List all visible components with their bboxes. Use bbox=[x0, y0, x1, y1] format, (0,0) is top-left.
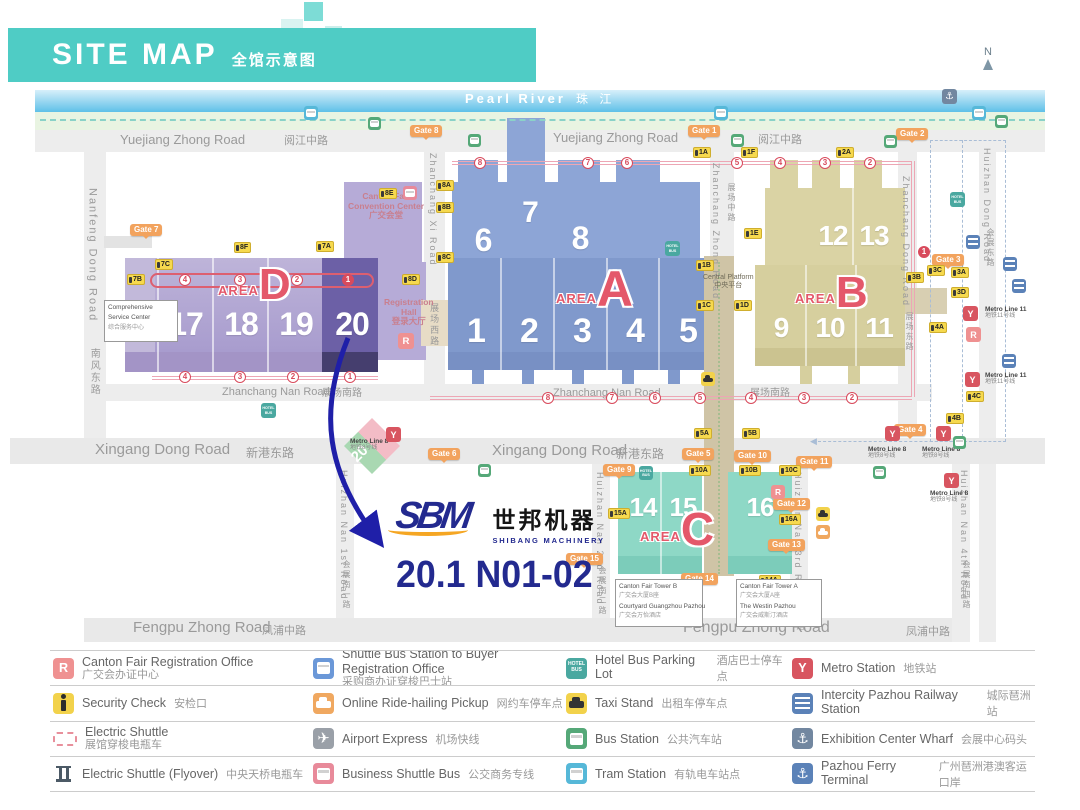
hotel-icon: HOTELBUS bbox=[639, 466, 653, 480]
anchor1-icon: ⚓ bbox=[792, 728, 813, 749]
entrance-tag: 7C bbox=[155, 259, 173, 270]
canton-fair-tower-a-box: Canton Fair Tower A广交会大厦A座The Westin Paz… bbox=[736, 579, 822, 627]
legend-label-zh: 安检口 bbox=[174, 695, 207, 711]
shuttle-stop: 3 bbox=[234, 274, 246, 286]
hall-number: 3 bbox=[573, 312, 591, 351]
shuttle-stop: 3 bbox=[798, 392, 810, 404]
legend-item: Bus Station公共汽车站 bbox=[563, 722, 789, 757]
rail-icon bbox=[1003, 257, 1017, 271]
walk-stub bbox=[848, 366, 860, 384]
site-map-page: SITE MAP 全馆示意图 N Pearl River珠 江Yuejiang … bbox=[0, 0, 1080, 810]
legend-label-en: Tram Station bbox=[595, 767, 666, 781]
entrance-tag: 1E bbox=[744, 228, 762, 239]
legend-label-en: Hotel Bus Parking Lot bbox=[595, 653, 709, 681]
legend-label-zh: 广州琶洲港澳客运口岸 bbox=[939, 758, 1035, 790]
busgreen-icon bbox=[478, 464, 491, 477]
gate-label: Gate 1 bbox=[688, 125, 720, 137]
hall-number: 8 bbox=[572, 220, 589, 257]
legend-label-en: Online Ride-hailing Pickup bbox=[342, 696, 489, 710]
gate-label: Gate 5 bbox=[682, 448, 714, 460]
shuttle-stop: 2 bbox=[287, 371, 299, 383]
map-label: 阅江中路 bbox=[284, 135, 328, 147]
entrance-tag: 8A bbox=[436, 180, 454, 191]
area-title-a: AREAA bbox=[556, 268, 633, 311]
comprehensive-service-center-box: ComprehensiveService Center综合服务中心 bbox=[104, 300, 178, 342]
map-label: 会展南四路 bbox=[961, 560, 970, 610]
map-label: Xingang Dong Road bbox=[95, 442, 230, 459]
plane-icon: ✈ bbox=[313, 728, 334, 749]
map-label: 新港东路 bbox=[246, 447, 294, 460]
shuttle-stop: 2 bbox=[846, 392, 858, 404]
entrance-tag: 4C bbox=[966, 391, 984, 402]
walk-stub bbox=[522, 370, 534, 384]
banner-square bbox=[304, 2, 323, 21]
shuttle-stop: 8 bbox=[542, 392, 554, 404]
legend-item: ⚓Pazhou Ferry Terminal广州琶洲港澳客运口岸 bbox=[789, 757, 1035, 792]
legend-label-zh: 展馆穿梭电瓶车 bbox=[85, 739, 168, 752]
platform-dotted-line bbox=[718, 262, 720, 574]
legend-label-zh: 机场快线 bbox=[435, 731, 479, 747]
hall-number: 5 bbox=[679, 312, 697, 351]
metro-icon: Y bbox=[792, 658, 813, 679]
map-label: 珠 江 bbox=[576, 93, 615, 106]
hall-number: 1 bbox=[467, 312, 485, 351]
legend-item: Tram Station有轨电车站点 bbox=[563, 757, 789, 792]
shuttle-stop: 6 bbox=[649, 392, 661, 404]
legend-label-zh: 公交商务专线 bbox=[468, 766, 534, 782]
gate-label: Gate 2 bbox=[896, 128, 928, 140]
gate-label: Gate 13 bbox=[768, 539, 805, 551]
legend-label-zh: 地铁站 bbox=[903, 660, 936, 676]
busgreen-icon bbox=[884, 135, 897, 148]
legend-label-en: Electric Shuttle (Flyover) bbox=[82, 767, 218, 781]
shuttle-stop: 1 bbox=[342, 274, 354, 286]
gate-label: Gate 11 bbox=[796, 456, 832, 468]
gate-label: Gate 12 bbox=[773, 498, 810, 510]
busgreen-icon bbox=[566, 728, 587, 749]
shuttle-stop: 4 bbox=[774, 157, 786, 169]
area-b-corridor bbox=[755, 348, 905, 366]
metro-line-label: Metro Line 11地铁11号线 bbox=[985, 306, 1027, 320]
busblue-icon bbox=[313, 658, 334, 679]
walk-stub bbox=[572, 370, 584, 384]
shuttle-stop: 3 bbox=[819, 157, 831, 169]
legend-item: Online Ride-hailing Pickup网约车停车点 bbox=[310, 686, 563, 721]
rail-icon bbox=[1012, 279, 1026, 293]
shuttle-stop: 2 bbox=[291, 274, 303, 286]
legend-label-en: Metro Station bbox=[821, 661, 895, 675]
map-label: Registration Hall 登录大厅 bbox=[384, 298, 434, 327]
legend-label-zh: 城际琶洲站 bbox=[987, 687, 1035, 719]
legend-label-en: Canton Fair Registration Office bbox=[82, 655, 253, 669]
map-label: 南风东路 bbox=[88, 348, 99, 396]
gate-label: Gate 6 bbox=[428, 448, 460, 460]
legend-label-en: Security Check bbox=[82, 696, 166, 710]
hall-number: 16 bbox=[747, 492, 774, 523]
tram-icon bbox=[304, 106, 318, 120]
entrance-tag: 1D bbox=[734, 300, 752, 311]
shuttle-stop: 5 bbox=[694, 392, 706, 404]
metro-icon: Y bbox=[963, 306, 978, 321]
map-label: Pearl River bbox=[465, 92, 566, 107]
north-label: N bbox=[978, 46, 998, 58]
map-label: 展场南路 bbox=[322, 388, 362, 399]
map-label: Xingang Dong Road bbox=[492, 443, 627, 460]
hall-number: 7 bbox=[522, 196, 538, 230]
hall-number: 18 bbox=[224, 306, 258, 343]
map-label: 展场东路 bbox=[904, 312, 913, 352]
hotel-icon: HOTELBUS bbox=[261, 403, 276, 418]
page-title: SITE MAP bbox=[52, 38, 218, 72]
ridehail-icon bbox=[313, 693, 334, 714]
north-arrow-icon bbox=[983, 59, 993, 70]
canton-fair-tower-b-box: Canton Fair Tower B广交会大厦B座Courtyard Guan… bbox=[615, 579, 703, 627]
entrance-tag: 1F bbox=[741, 147, 758, 158]
legend-label-zh: 有轨电车站点 bbox=[674, 766, 740, 782]
hall-number: 20 bbox=[335, 306, 369, 343]
gate-label: Gate 8 bbox=[410, 125, 442, 137]
flyover-icon bbox=[53, 763, 74, 784]
legend-label-zh: 网约车停车点 bbox=[497, 695, 563, 711]
map-label: 会展南一路 bbox=[341, 560, 350, 610]
busgreen-icon bbox=[731, 134, 744, 147]
hall-7-tower bbox=[507, 118, 545, 184]
legend-item: Taxi Stand出租车停车点 bbox=[563, 686, 789, 721]
entrance-tag: 15A bbox=[608, 508, 630, 519]
busgreen-icon bbox=[953, 436, 966, 449]
legend-item: YMetro Station地铁站 bbox=[789, 651, 1035, 686]
shuttle-stop: 7 bbox=[606, 392, 618, 404]
buspink-icon bbox=[313, 763, 334, 784]
page-subtitle: 全馆示意图 bbox=[232, 49, 317, 70]
entrance-tag: 3D bbox=[951, 287, 969, 298]
entrance-tag: 5B bbox=[742, 428, 760, 439]
entrance-tag: 7B bbox=[127, 274, 145, 285]
hall-number: 2 bbox=[520, 312, 538, 351]
shuttle-stop: 1 bbox=[344, 371, 356, 383]
hall-number: 4 bbox=[626, 312, 644, 351]
shuttle-stop: 4 bbox=[179, 274, 191, 286]
busgreen-icon bbox=[873, 466, 886, 479]
entrance-tag: 10B bbox=[739, 465, 761, 476]
area-title-c: AREAC bbox=[640, 510, 714, 549]
metro-icon: Y bbox=[944, 473, 959, 488]
entrance-tag: 10C bbox=[779, 465, 801, 476]
r-icon: R bbox=[966, 327, 981, 342]
legend-label-zh: 公共汽车站 bbox=[667, 731, 722, 747]
legend-label-en: Pazhou Ferry Terminal bbox=[821, 759, 931, 787]
buspink-icon bbox=[403, 186, 417, 200]
hall-number: 9 bbox=[774, 312, 789, 344]
hall-number: 12 bbox=[818, 220, 847, 252]
gate-label: Gate 9 bbox=[603, 464, 635, 476]
entrance-tag: 10A bbox=[689, 465, 711, 476]
metro-icon: Y bbox=[936, 426, 951, 441]
r-icon: R bbox=[398, 333, 414, 349]
shuttle-stop: 4 bbox=[745, 392, 757, 404]
metro-line-label: Metro Line 8地铁8号线 bbox=[350, 438, 388, 452]
legend-label-en: Airport Express bbox=[342, 732, 427, 746]
sbm-logo-swoosh bbox=[388, 524, 468, 536]
shuttle-route-line bbox=[452, 161, 912, 165]
tram-icon bbox=[972, 106, 986, 120]
map-label: 凤浦中路 bbox=[906, 626, 950, 638]
area-c-right-corridor bbox=[728, 556, 792, 574]
taxi-icon bbox=[566, 693, 587, 714]
legend-item: RCanton Fair Registration Office广交会办证中心 bbox=[50, 651, 310, 686]
hotel-icon: HOTELBUS bbox=[566, 658, 587, 679]
entrance-tag: 8B bbox=[436, 202, 454, 213]
loop-icon bbox=[53, 732, 77, 746]
hotel-icon: HOTELBUS bbox=[665, 241, 680, 256]
legend-item: ⚓Exhibition Center Wharf会展中心码头 bbox=[789, 722, 1035, 757]
rail-icon bbox=[792, 693, 813, 714]
busgreen-icon bbox=[368, 117, 381, 130]
metro-line-label: Metro Line 11地铁11号线 bbox=[985, 372, 1027, 386]
legend-label-en: Electric Shuttle bbox=[85, 725, 168, 739]
entrance-tag: 7A bbox=[316, 241, 334, 252]
entrance-tag: 8D bbox=[402, 274, 420, 285]
legend-label-zh: 中央天桥电瓶车 bbox=[226, 766, 303, 782]
hall-number: 19 bbox=[279, 306, 313, 343]
legend-label-en: Exhibition Center Wharf bbox=[821, 732, 953, 746]
legend-label-zh: 广交会办证中心 bbox=[82, 669, 253, 682]
shuttle-stop: 5 bbox=[731, 157, 743, 169]
legend-item: Intercity Pazhou Railway Station城际琶洲站 bbox=[789, 686, 1035, 721]
legend-label-zh: 酒店巴士停车点 bbox=[717, 652, 789, 684]
legend-label-en: Business Shuttle Bus bbox=[342, 767, 460, 781]
hall-number: 13 bbox=[859, 220, 888, 252]
map-label: 阅江中路 bbox=[758, 134, 802, 146]
legend-label-zh: 出租车停车点 bbox=[661, 695, 727, 711]
tram-dashed-line bbox=[818, 441, 963, 442]
metro-icon: Y bbox=[386, 427, 401, 442]
booth-number: 20.1 N01-02 bbox=[396, 554, 593, 597]
legend-label-zh: 采购商办证穿梭巴士站 bbox=[342, 676, 563, 686]
metro-icon: Y bbox=[965, 372, 980, 387]
metro-line-label: Metro Line 8地铁8号线 bbox=[868, 446, 906, 460]
riverside-tram-line bbox=[40, 119, 1045, 121]
entrance-tag: 3A bbox=[951, 267, 969, 278]
legend-item: Business Shuttle Bus公交商务专线 bbox=[310, 757, 563, 792]
metro-icon: Y bbox=[885, 426, 900, 441]
map-label: Yuejiang Zhong Road bbox=[553, 131, 678, 146]
rail-icon bbox=[1002, 354, 1016, 368]
legend-item: Electric Shuttle展馆穿梭电瓶车 bbox=[50, 722, 310, 757]
legend-item: Shuttle Bus Station to Buyer Registratio… bbox=[310, 651, 563, 686]
entrance-tag: 2A bbox=[836, 147, 854, 158]
area-a-corridor bbox=[448, 352, 710, 370]
entrance-tag: 8E bbox=[379, 188, 397, 199]
shuttle-stop: 4 bbox=[179, 371, 191, 383]
walk-stub bbox=[800, 366, 812, 384]
entrance-tag: 8C bbox=[436, 252, 454, 263]
walk-stub bbox=[668, 370, 680, 384]
entrance-tag: 1A bbox=[693, 147, 711, 158]
map-label: 新港东路 bbox=[616, 448, 664, 461]
map-label: Fengpu Zhong Road bbox=[133, 620, 271, 637]
gate-label: Gate 10 bbox=[734, 450, 771, 462]
shuttle-stop: 7 bbox=[582, 157, 594, 169]
busgreen-icon bbox=[468, 134, 481, 147]
legend-label-en: Taxi Stand bbox=[595, 696, 653, 710]
entrance-tag: 8F bbox=[234, 242, 251, 253]
shuttle-stop: 3 bbox=[234, 371, 246, 383]
entrance-tag: 4A bbox=[929, 322, 947, 333]
shuttle-route-line bbox=[430, 396, 912, 400]
ridehail-icon bbox=[816, 525, 830, 539]
taxi-icon bbox=[816, 507, 830, 521]
legend-item: Electric Shuttle (Flyover)中央天桥电瓶车 bbox=[50, 757, 310, 792]
person-icon bbox=[53, 693, 74, 714]
entrance-tag: 4B bbox=[946, 413, 964, 424]
hotel-icon: HOTELBUS bbox=[950, 192, 965, 207]
map-label: ◀ bbox=[810, 436, 817, 446]
shuttle-stop: 2 bbox=[864, 157, 876, 169]
entrance-tag: 3C bbox=[927, 265, 945, 276]
legend-label-en: Shuttle Bus Station to Buyer Registratio… bbox=[342, 651, 563, 676]
busgreen-icon bbox=[995, 115, 1008, 128]
map-label: 会展东路 bbox=[985, 228, 994, 268]
shuttle-stop: 6 bbox=[621, 157, 633, 169]
legend-label-en: Intercity Pazhou Railway Station bbox=[821, 688, 979, 716]
map-label: Yuejiang Zhong Road bbox=[120, 133, 245, 148]
map-label: Zhanchang Dong Road bbox=[901, 176, 911, 307]
area-title-d: AREAD bbox=[218, 266, 291, 303]
rail-icon bbox=[966, 235, 980, 249]
map-label: Central Platform 中央平台 bbox=[703, 274, 754, 290]
legend-label-en: Bus Station bbox=[595, 732, 659, 746]
north-compass: N bbox=[978, 46, 998, 70]
map-legend: RCanton Fair Registration Office广交会办证中心S… bbox=[50, 650, 1035, 792]
hall-divider bbox=[553, 258, 555, 370]
tram-icon bbox=[566, 763, 587, 784]
gate-label: Gate 7 bbox=[130, 224, 162, 236]
anchor1-icon: ⚓ bbox=[942, 89, 957, 104]
walk-stub bbox=[472, 370, 484, 384]
hall-divider bbox=[658, 258, 660, 370]
legend-item: Security Check安检口 bbox=[50, 686, 310, 721]
hall-20-corridor bbox=[322, 352, 378, 372]
hall-divider bbox=[500, 258, 502, 370]
entrance-tag: 16A bbox=[779, 514, 801, 525]
tram-icon bbox=[714, 106, 728, 120]
hall-number: 11 bbox=[865, 312, 893, 344]
entrance-tag: 1B bbox=[696, 260, 714, 271]
walk-stub bbox=[622, 370, 634, 384]
taxi-icon bbox=[701, 372, 715, 386]
r-icon: R bbox=[53, 658, 74, 679]
shuttle-stop: 8 bbox=[474, 157, 486, 169]
legend-item: HOTELBUSHotel Bus Parking Lot酒店巴士停车点 bbox=[563, 651, 789, 686]
anchor2-icon: ⚓ bbox=[792, 763, 813, 784]
r-icon: R bbox=[771, 485, 785, 499]
hall-divider bbox=[852, 188, 854, 265]
area-title-b: AREAB bbox=[795, 274, 868, 311]
sbm-chinese-name: 世邦机器 bbox=[492, 501, 604, 535]
map-label: Zhanchang Nan Road bbox=[222, 386, 330, 398]
metro-line-label: Metro Line 8地铁8号线 bbox=[930, 490, 968, 504]
legend-label-zh: 会展中心码头 bbox=[961, 731, 1027, 747]
map-label: 展场中路 bbox=[726, 183, 735, 223]
map-label: 凤浦中路 bbox=[262, 625, 306, 637]
legend-item: ✈Airport Express机场快线 bbox=[310, 722, 563, 757]
hall-number: 6 bbox=[475, 222, 492, 259]
sbm-english-name: SHIBANG MACHINERY bbox=[492, 536, 604, 545]
entrance-tag: 1C bbox=[696, 300, 714, 311]
shuttle-stop: 1 bbox=[918, 246, 930, 258]
map-label: Nanfeng Dong Road bbox=[86, 188, 98, 322]
booth-callout: SBM 世邦机器 SHIBANG MACHINERY 20.1 N01-02 bbox=[396, 498, 605, 597]
entrance-tag: 5A bbox=[694, 428, 712, 439]
title-banner: SITE MAP 全馆示意图 bbox=[8, 28, 536, 82]
entrance-tag: 3B bbox=[906, 272, 924, 283]
